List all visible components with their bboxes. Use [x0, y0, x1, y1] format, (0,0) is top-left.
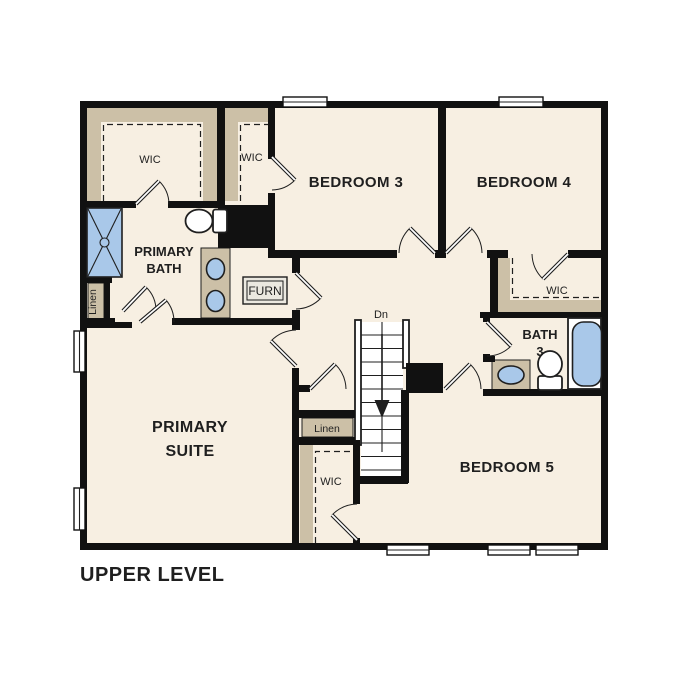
bedroom5-label: BEDROOM 5 [460, 459, 554, 476]
wic-bedroom5-label: WIC [320, 476, 341, 488]
wall-exterior-right [601, 101, 608, 550]
linen-left-label: Linen [87, 289, 99, 315]
bathtub-icon [568, 318, 602, 389]
window-bedroom3 [283, 97, 327, 107]
window-bedroom5-a [488, 545, 530, 555]
page-title: UPPER LEVEL [80, 564, 224, 586]
stair-rail-left [355, 320, 361, 445]
window-bedroom4 [499, 97, 543, 107]
primary-bath-label-2: BATH [146, 261, 181, 276]
primary-vanity-sink-1 [207, 259, 225, 280]
shower-icon [87, 208, 122, 277]
linen-center-label: Linen [314, 423, 340, 435]
window-bottom-left [387, 545, 429, 555]
primary-bath-label-1: PRIMARY [134, 244, 194, 259]
primary-suite-label-1: PRIMARY [152, 419, 228, 436]
bath3-label-1: BATH [522, 327, 557, 342]
primary-vanity-sink-2 [207, 291, 225, 312]
wic-bedroom3-label: WIC [241, 152, 262, 164]
window-bedroom5-b [536, 545, 578, 555]
wic-primary-label: WIC [139, 154, 160, 166]
wic-bedroom4-label: WIC [546, 285, 567, 297]
primary-toilet-icon [186, 210, 228, 233]
wic-bedroom5-shelf [300, 445, 313, 543]
staircase [355, 320, 409, 476]
window-suite-lower [74, 488, 85, 530]
bedroom3-label: BEDROOM 3 [309, 174, 403, 191]
stair-rail-right [403, 320, 409, 368]
chase-block-stairs [406, 363, 443, 393]
bath3-sink [498, 366, 524, 384]
bath3-label-2: 3 [536, 344, 543, 359]
bedroom4-label: BEDROOM 4 [477, 174, 572, 191]
furnace-label: FURN [248, 284, 281, 298]
window-suite-upper [74, 331, 85, 372]
primary-suite-label-2: SUITE [165, 443, 214, 460]
floor-plan-drawing: WIC WIC BEDROOM 3 BEDROOM 4 PRIMARY BATH… [0, 0, 687, 687]
stairs-dn-label: Dn [374, 309, 388, 321]
floor-plan-page: WIC WIC BEDROOM 3 BEDROOM 4 PRIMARY BATH… [0, 0, 687, 687]
